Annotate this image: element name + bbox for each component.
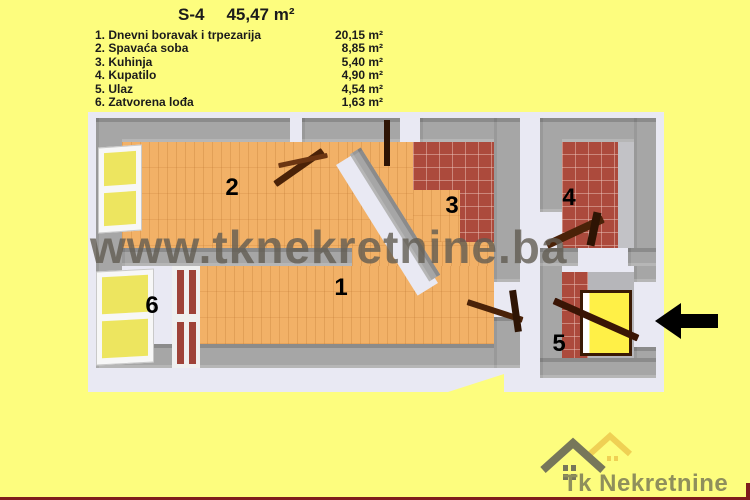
room-area: 5,40 m² [342,56,383,69]
room-number-4: 4 [556,186,582,210]
hall-door-frame-icon [384,120,390,166]
room-number-2: 2 [219,176,245,200]
room-number-1: 1 [328,276,354,300]
room-area: 4,54 m² [342,83,383,96]
loggia-glass-wall [172,266,200,368]
room-label: 3. Kuhinja [95,56,152,69]
room-number-5: 5 [546,332,572,356]
room-area: 8,85 m² [342,42,383,55]
room-label: 1. Dnevni boravak i trpezarija [95,29,261,42]
room-area: 20,15 m² [335,29,383,42]
room-number-3: 3 [439,194,465,218]
room-label: 5. Ulaz [95,83,133,96]
legend-row-5: 5. Ulaz 4,54 m² [95,83,383,96]
room-label: 6. Zatvorena lođa [95,96,194,109]
legend-row-4: 4. Kupatilo 4,90 m² [95,69,383,82]
right-border-notch [746,483,750,500]
total-area: 45,47 m² [226,5,294,24]
legend-row-2: 2. Spavaća soba 8,85 m² [95,42,383,55]
room-legend: 1. Dnevni boravak i trpezarija 20,15 m² … [95,29,383,109]
real-estate-floorplan-page: { "title": { "unit": "S-4", "total_area"… [0,0,750,500]
wall-bottom-rightblock [540,358,656,378]
room-label: 2. Spavaća soba [95,42,188,55]
unit-code: S-4 [178,5,204,24]
wall-bottom [96,344,520,368]
legend-row-1: 1. Dnevni boravak i trpezarija 20,15 m² [95,29,383,42]
legend-row-3: 3. Kuhinja 5,40 m² [95,56,383,69]
page-title: S-445,47 m² [178,5,295,25]
room-number-6: 6 [139,294,165,318]
room-label: 4. Kupatilo [95,69,156,82]
wall-top-a [96,118,290,142]
entrance-arrow-icon [655,303,719,339]
legend-row-6: 6. Zatvorena lođa 1,63 m² [95,96,383,109]
room-area: 1,63 m² [342,96,383,109]
room-area: 4,90 m² [342,69,383,82]
agency-logo-text: Tk Nekretnine [563,470,728,498]
watermark-text: www.tknekretnine.ba [90,220,656,274]
